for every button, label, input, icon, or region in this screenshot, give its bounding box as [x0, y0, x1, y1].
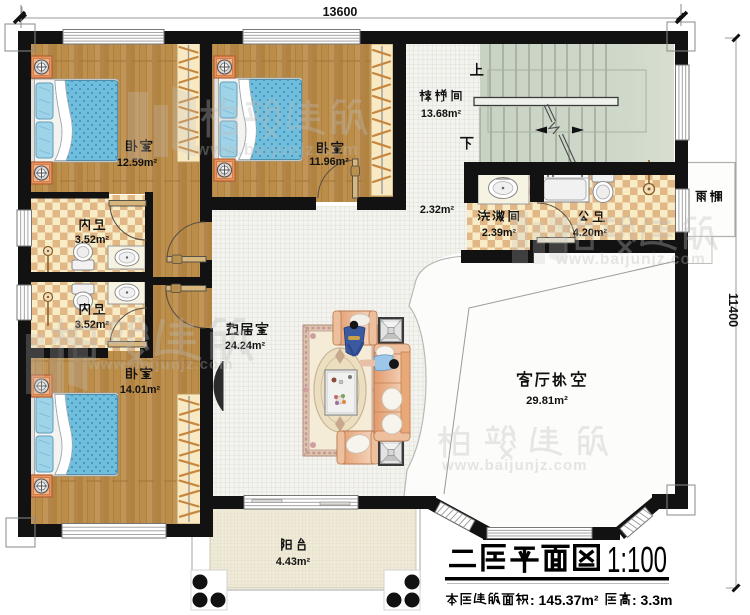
- svg-text:13600: 13600: [323, 5, 358, 19]
- svg-text:www.baijunjz.com: www.baijunjz.com: [555, 251, 706, 268]
- svg-text:www.baijunjz.com: www.baijunjz.com: [441, 457, 587, 474]
- svg-text:11400: 11400: [726, 293, 740, 327]
- svg-text:3.52m²: 3.52m²: [75, 234, 110, 246]
- svg-text:1:100: 1:100: [607, 539, 667, 580]
- svg-text:29.81m²: 29.81m²: [526, 395, 568, 407]
- svg-text:www.baijunjz.com: www.baijunjz.com: [87, 356, 233, 373]
- svg-text:: 3.3m: : 3.3m: [632, 592, 672, 608]
- svg-text:13.68m²: 13.68m²: [421, 108, 462, 120]
- svg-text:2.39m²: 2.39m²: [482, 227, 517, 239]
- svg-text:4.43m²: 4.43m²: [276, 556, 311, 568]
- svg-text:: 145.37m²: : 145.37m²: [530, 592, 599, 608]
- svg-text:14.01m²: 14.01m²: [120, 384, 161, 396]
- svg-text:2.32m²: 2.32m²: [420, 204, 455, 216]
- svg-text:www.baijunjz.com: www.baijunjz.com: [195, 140, 359, 159]
